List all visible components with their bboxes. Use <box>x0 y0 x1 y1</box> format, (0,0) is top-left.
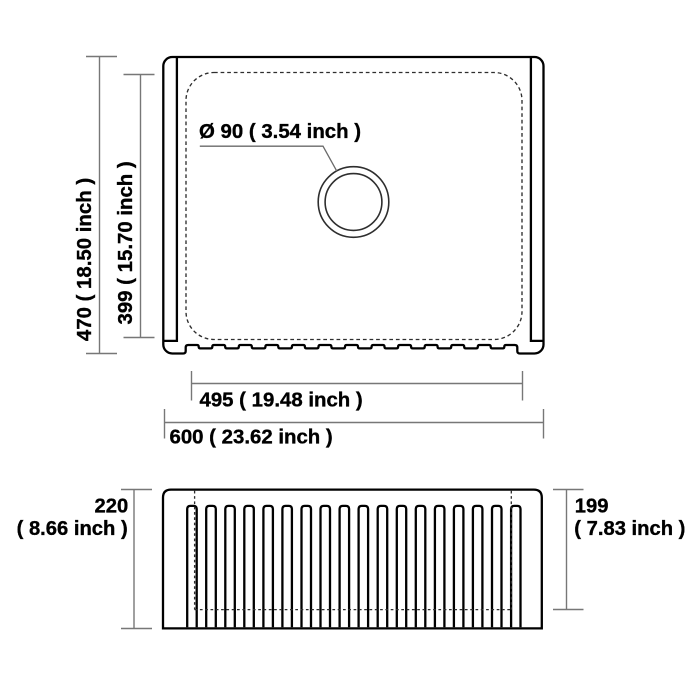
svg-text:495 ( 19.48 inch ): 495 ( 19.48 inch ) <box>200 389 363 411</box>
svg-text:220: 220 <box>95 496 129 518</box>
svg-text:( 8.66 inch ): ( 8.66 inch ) <box>17 518 128 540</box>
svg-text:600 ( 23.62 inch ): 600 ( 23.62 inch ) <box>170 427 333 449</box>
svg-text:( 7.83 inch ): ( 7.83 inch ) <box>574 518 685 540</box>
svg-text:199: 199 <box>575 496 609 518</box>
svg-text:399 ( 15.70 inch ): 399 ( 15.70 inch ) <box>115 161 137 324</box>
svg-text:470 ( 18.50 inch ): 470 ( 18.50 inch ) <box>74 178 96 341</box>
svg-text:Ø 90 ( 3.54 inch ): Ø 90 ( 3.54 inch ) <box>199 121 361 143</box>
